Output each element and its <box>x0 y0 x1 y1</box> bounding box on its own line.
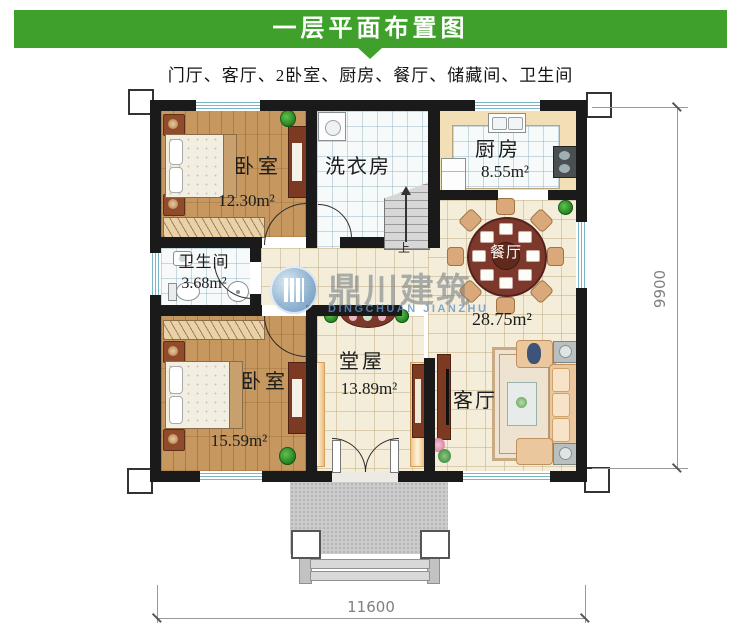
window-bathroom <box>150 253 161 295</box>
plant <box>279 447 296 465</box>
area-label-living: 28.75m² <box>462 310 542 330</box>
dim-line-height <box>677 107 678 469</box>
side-table <box>553 341 577 363</box>
place-setting <box>480 269 494 281</box>
stairs-arrow-line <box>405 192 407 242</box>
plant <box>280 110 296 127</box>
title-banner: 一层平面布置图 <box>14 10 727 48</box>
area-label-bedroom-bottom: 15.59m² <box>200 432 278 451</box>
dining-chair <box>496 198 515 215</box>
fridge <box>441 158 466 191</box>
stairs-up-label: 上 <box>394 242 414 255</box>
porch-column <box>420 530 450 559</box>
coffee-table <box>507 382 537 426</box>
sink-basin <box>508 117 523 130</box>
place-setting <box>518 269 532 281</box>
window-living <box>463 471 550 482</box>
room-label-living: 客厅 <box>452 390 498 412</box>
person-figure <box>527 343 541 364</box>
nightstand <box>163 341 185 363</box>
pillow <box>169 396 183 424</box>
nightstand <box>163 114 185 136</box>
room-label-dining: 餐厅 <box>487 245 525 262</box>
room-label-kitchen: 厨房 <box>472 139 524 161</box>
sofa-cushion <box>552 368 570 392</box>
place-setting <box>472 250 486 262</box>
wall-kitchen-left <box>428 111 440 248</box>
place-setting <box>499 223 513 235</box>
burner <box>559 164 570 173</box>
wall-bedroom-top-bottom <box>150 237 262 248</box>
area-label-bathroom: 3.68m² <box>172 275 236 293</box>
room-label-bedroom-bottom: 卧室 <box>236 371 294 393</box>
sofa-cushion <box>552 393 570 417</box>
banner-pointer-icon <box>358 48 382 59</box>
wall-right <box>576 100 587 482</box>
wall-laundry-bottom <box>340 237 384 248</box>
plant <box>558 200 573 215</box>
room-label-bathroom: 卫生间 <box>176 254 232 272</box>
washer-door <box>325 120 341 136</box>
porch-step <box>310 559 430 569</box>
wall-kitchen-bottom-a <box>440 190 498 200</box>
corner-marker <box>586 92 612 118</box>
dim-label-width: 11600 <box>340 598 402 616</box>
place-setting <box>526 250 540 262</box>
wardrobe <box>163 320 265 340</box>
dim-line-width <box>157 618 586 619</box>
flower-leaves <box>438 449 451 463</box>
floor-corridor <box>261 248 428 305</box>
wall-bedroom-bottom-right <box>306 316 317 471</box>
fridge-divider <box>442 171 465 172</box>
area-label-kitchen: 8.55m² <box>470 163 540 182</box>
cabinet-inner <box>415 379 421 423</box>
side-table <box>553 443 577 465</box>
pillow <box>169 167 183 193</box>
dining-chair <box>447 247 464 266</box>
burner <box>559 151 570 160</box>
area-label-hall: 13.89m² <box>330 380 408 399</box>
window-dining <box>576 222 587 288</box>
sofa-cushion <box>552 418 570 442</box>
bedroom-cabinet <box>288 126 307 198</box>
pillow <box>169 366 183 394</box>
stairs-arrow-head-icon <box>401 186 411 195</box>
wall-kitchen-bottom-b <box>548 190 576 200</box>
bed <box>165 134 237 198</box>
window-bedroom-bottom <box>200 471 262 482</box>
sink-basin <box>492 117 507 130</box>
corner-marker <box>584 467 610 493</box>
tv-screen <box>446 369 449 425</box>
kitchen-sink <box>488 113 526 133</box>
wall-hall-top <box>306 305 402 316</box>
subtitle: 门厅、客厅、2卧室、厨房、餐厅、储藏间、卫生间 <box>0 61 741 86</box>
table-flower <box>516 397 527 408</box>
wardrobe <box>163 217 265 238</box>
page-title: 一层平面布置图 <box>273 15 469 42</box>
stove <box>553 146 577 178</box>
window-bedroom-top <box>196 100 260 111</box>
area-label-bedroom-top: 12.30m² <box>204 192 289 211</box>
wall-bath-right-a <box>250 248 261 262</box>
tv-cabinet-living <box>437 354 451 440</box>
room-label-hall: 堂屋 <box>336 351 388 373</box>
dining-chair <box>547 247 564 266</box>
place-setting <box>518 231 532 243</box>
armchair <box>516 438 553 465</box>
place-setting <box>480 231 494 243</box>
window-kitchen <box>475 100 540 111</box>
porch-step <box>310 571 430 581</box>
room-label-bedroom-top: 卧室 <box>228 156 288 178</box>
room-label-laundry: 洗衣房 <box>322 156 394 178</box>
porch-column <box>291 530 321 559</box>
cabinet-inner <box>292 143 302 181</box>
entrance-threshold <box>332 471 398 482</box>
dim-ext-line <box>592 468 688 469</box>
bed <box>165 361 243 429</box>
floorplan-page: 一层平面布置图 门厅、客厅、2卧室、厨房、餐厅、储藏间、卫生间 <box>0 0 741 635</box>
dim-label-height: 9900 <box>651 259 669 319</box>
wall-bedroom-bottom-top <box>150 305 262 316</box>
wall-bedroom-top-right <box>306 111 317 248</box>
place-setting <box>499 277 513 289</box>
pillow <box>169 139 183 165</box>
washing-machine <box>318 112 346 141</box>
wall-hall-living-divider <box>424 358 435 471</box>
dim-ext-line <box>592 107 688 108</box>
nightstand <box>163 429 185 451</box>
